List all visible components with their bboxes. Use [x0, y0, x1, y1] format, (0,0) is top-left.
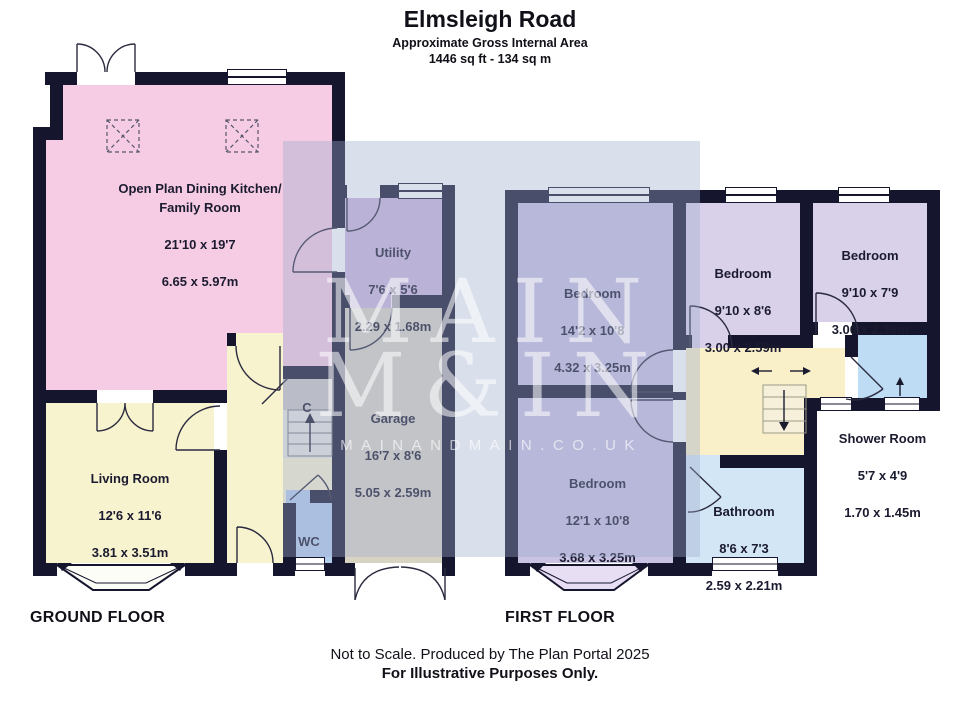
page-area: 1446 sq ft - 134 sq m — [0, 52, 980, 66]
page-subtitle: Approximate Gross Internal Area — [0, 36, 980, 50]
page-title: Elmsleigh Road — [0, 6, 980, 33]
room-dim-metric: 3.00 x 2.59m — [683, 339, 803, 357]
room-dim-imperial: 8'6 x 7'3 — [682, 540, 806, 558]
room-name: Living Room — [55, 470, 205, 488]
watermark-overlay — [283, 141, 700, 557]
first-floor-label: FIRST FLOOR — [505, 609, 615, 627]
kitchen-skylight-symbols — [107, 120, 258, 152]
room-dim-metric: 3.00 x 2.36m — [808, 321, 932, 339]
ground-floor-label: GROUND FLOOR — [30, 609, 165, 627]
first-stairs-arrow-down — [779, 390, 789, 431]
footer-note: Not to Scale. Produced by The Plan Porta… — [0, 646, 980, 663]
room-dim-imperial: 5'7 x 4'9 — [815, 467, 950, 485]
room-name: Bedroom — [808, 247, 932, 265]
room-dim-imperial: 12'6 x 11'6 — [55, 507, 205, 525]
room-dim-metric: 1.70 x 1.45m — [815, 504, 950, 522]
room-label-bedroom3: Bedroom 9'10 x 7'9 3.00 x 2.36m — [808, 229, 932, 358]
room-name: Shower Room — [815, 430, 950, 448]
room-dim-imperial: 9'10 x 8'6 — [683, 302, 803, 320]
room-dim-imperial: 9'10 x 7'9 — [808, 284, 932, 302]
room-dim-metric: 2.59 x 2.21m — [682, 577, 806, 595]
room-label-living: Living Room 12'6 x 11'6 3.81 x 3.51m — [55, 452, 205, 581]
room-label-bathroom: Bathroom 8'6 x 7'3 2.59 x 2.21m — [682, 485, 806, 614]
room-label-shower: Shower Room 5'7 x 4'9 1.70 x 1.45m — [815, 412, 950, 541]
room-dim-metric: 3.81 x 3.51m — [55, 544, 205, 562]
footer-disclaimer: For Illustrative Purposes Only. — [0, 665, 980, 682]
room-name: Bathroom — [682, 503, 806, 521]
room-name: Bedroom — [683, 265, 803, 283]
room-label-bedroom2: Bedroom 9'10 x 8'6 3.00 x 2.59m — [683, 247, 803, 376]
floorplan-canvas: Elmsleigh Road Approximate Gross Interna… — [0, 0, 980, 702]
